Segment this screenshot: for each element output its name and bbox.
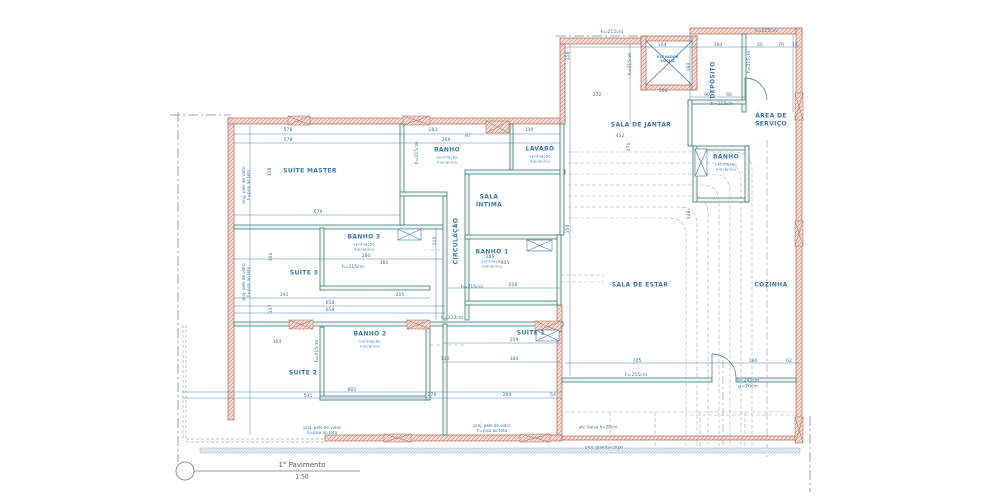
boundary-lines (170, 36, 810, 492)
ceiling-duct-dashed-curves (424, 152, 795, 446)
exterior-walls (228, 28, 802, 441)
glass-wall-projection (183, 325, 325, 442)
dimension-lines (182, 34, 800, 435)
door-arcs (712, 78, 767, 378)
title-block-marker (176, 462, 360, 480)
window-symbols (288, 93, 803, 443)
drawing-title: 1° Pavimento (278, 461, 325, 469)
drawing-scale: 1:50 (295, 474, 308, 481)
floor-plan-drawing (0, 0, 1000, 500)
drawing-scale-value: 1:50 (295, 474, 308, 481)
floor-plan-canvas: SUÍTE MASTERBANHOventilação mecânicaLAVA… (0, 0, 1000, 500)
elevator-cross (646, 41, 692, 85)
guard-rail-strip (200, 448, 800, 453)
drawing-title-name: 1° Pavimento (278, 461, 325, 469)
